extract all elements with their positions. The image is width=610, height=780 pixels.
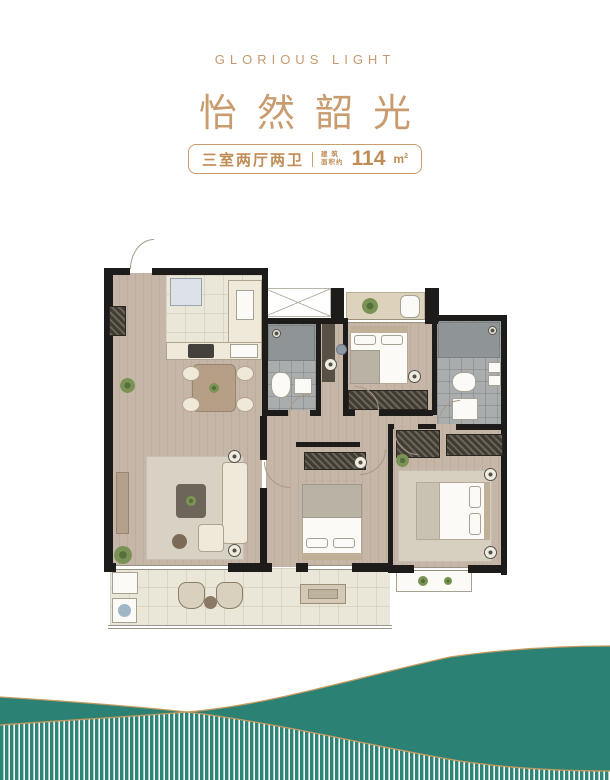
ledge-plant2-icon bbox=[444, 577, 452, 585]
wall bbox=[468, 565, 507, 573]
dining-plant-icon bbox=[209, 383, 219, 393]
area-unit: m2 bbox=[393, 152, 408, 166]
ceiling-light-icon bbox=[324, 358, 337, 371]
balcony-chair bbox=[216, 582, 243, 609]
bedroom2-headboard bbox=[350, 326, 408, 333]
ceiling-light-icon bbox=[228, 450, 241, 463]
balcony-window bbox=[116, 565, 228, 570]
badge-divider bbox=[312, 152, 313, 167]
subtitle-english: GLORIOUS LIGHT bbox=[0, 52, 610, 67]
bath2-toilet bbox=[452, 372, 476, 392]
walkin-closet bbox=[446, 434, 503, 456]
tv-console bbox=[116, 472, 129, 534]
wall bbox=[104, 563, 116, 572]
balcony-floor bbox=[110, 568, 390, 625]
dining-chair bbox=[182, 397, 200, 412]
washer-drum-icon bbox=[118, 604, 131, 617]
ceiling-light-icon bbox=[484, 546, 497, 559]
balcony-chair bbox=[178, 582, 205, 609]
master-bay-ledge bbox=[396, 570, 472, 592]
dining-chair bbox=[236, 366, 254, 381]
bath2-fixture bbox=[488, 375, 501, 386]
bedroom3-blanket bbox=[302, 484, 362, 518]
study-stool bbox=[336, 344, 347, 355]
dining-chair bbox=[236, 397, 254, 412]
wall bbox=[316, 318, 321, 416]
bath2-fixture bbox=[488, 362, 501, 373]
bedroom2-bay-window bbox=[348, 319, 425, 323]
wall bbox=[260, 488, 267, 570]
bath1-toilet bbox=[271, 372, 291, 398]
area-prefix-line1: 建 筑 bbox=[321, 151, 344, 159]
area-value: 114 bbox=[352, 147, 386, 171]
master-plant-icon bbox=[396, 454, 409, 467]
kitchen-fridge bbox=[170, 278, 202, 306]
wall bbox=[152, 268, 268, 275]
lounger-cushion bbox=[308, 589, 338, 599]
bedroom2-pillow bbox=[381, 335, 403, 345]
entry-door-arc bbox=[130, 239, 154, 269]
wall bbox=[432, 315, 437, 415]
kitchen-stove bbox=[188, 344, 214, 358]
bedroom3-window bbox=[308, 565, 352, 570]
planter-cushion bbox=[400, 295, 420, 318]
wall bbox=[388, 565, 414, 573]
bedroom3-pillow bbox=[333, 538, 355, 548]
dining-chair bbox=[182, 366, 200, 381]
ac-platform bbox=[265, 288, 331, 317]
wall bbox=[296, 563, 308, 572]
entry-closet bbox=[109, 306, 126, 336]
wall bbox=[228, 563, 272, 572]
wall bbox=[379, 410, 433, 416]
master-headboard bbox=[484, 482, 490, 540]
ledge-plant-icon bbox=[418, 576, 428, 586]
coffee-table-plant-icon bbox=[186, 496, 196, 506]
sofa-chaise bbox=[198, 524, 224, 552]
balcony-rail bbox=[108, 625, 392, 630]
wall bbox=[352, 563, 388, 572]
wall bbox=[296, 442, 360, 447]
bath1-showerhead-icon bbox=[272, 329, 281, 338]
area-prefix-line2: 面积约 bbox=[321, 159, 344, 167]
wave-footer bbox=[0, 645, 610, 780]
kitchen-prep-box bbox=[230, 344, 258, 358]
kitchen-sink bbox=[236, 290, 254, 320]
wall bbox=[260, 416, 267, 460]
bedroom3-headboard bbox=[302, 553, 362, 560]
ceiling-light-icon bbox=[228, 544, 241, 557]
living-plant-icon bbox=[114, 546, 132, 564]
bath1-sink bbox=[294, 378, 312, 394]
balcony-side-table bbox=[204, 596, 217, 609]
wall bbox=[388, 424, 393, 573]
floor-plan bbox=[100, 232, 512, 652]
master-pillow bbox=[469, 513, 481, 535]
wall bbox=[310, 410, 321, 416]
poster-title: 怡然韶光 bbox=[0, 82, 610, 137]
layout-label: 三室两厅两卫 bbox=[202, 149, 304, 170]
sofa bbox=[222, 462, 248, 544]
bath2-showerhead-icon bbox=[488, 326, 497, 335]
bedroom3-pillow bbox=[306, 538, 328, 548]
bedroom2-pillow bbox=[354, 335, 376, 345]
master-pillow bbox=[469, 486, 481, 508]
ottoman-stool bbox=[172, 534, 187, 549]
area-prefix: 建 筑 面积约 bbox=[321, 151, 344, 167]
wall bbox=[343, 410, 355, 416]
poster-page: { "header": { "subtitle_en": "GLORIOUS L… bbox=[0, 0, 610, 780]
master-throw-blanket bbox=[416, 482, 440, 540]
study-desk bbox=[322, 324, 335, 382]
wall bbox=[439, 315, 507, 321]
wall bbox=[418, 424, 436, 429]
ceiling-light-icon bbox=[408, 370, 421, 383]
balcony-cabinet bbox=[112, 572, 138, 594]
planter-plant-icon bbox=[362, 298, 378, 314]
entry-plant-icon bbox=[120, 378, 135, 393]
wall bbox=[456, 424, 507, 430]
bedroom2-blanket bbox=[350, 350, 380, 384]
master-bay-window bbox=[414, 567, 468, 571]
unit-info-badge: 三室两厅两卫 建 筑 面积约 114 m2 bbox=[188, 144, 422, 174]
ceiling-light-icon bbox=[484, 468, 497, 481]
